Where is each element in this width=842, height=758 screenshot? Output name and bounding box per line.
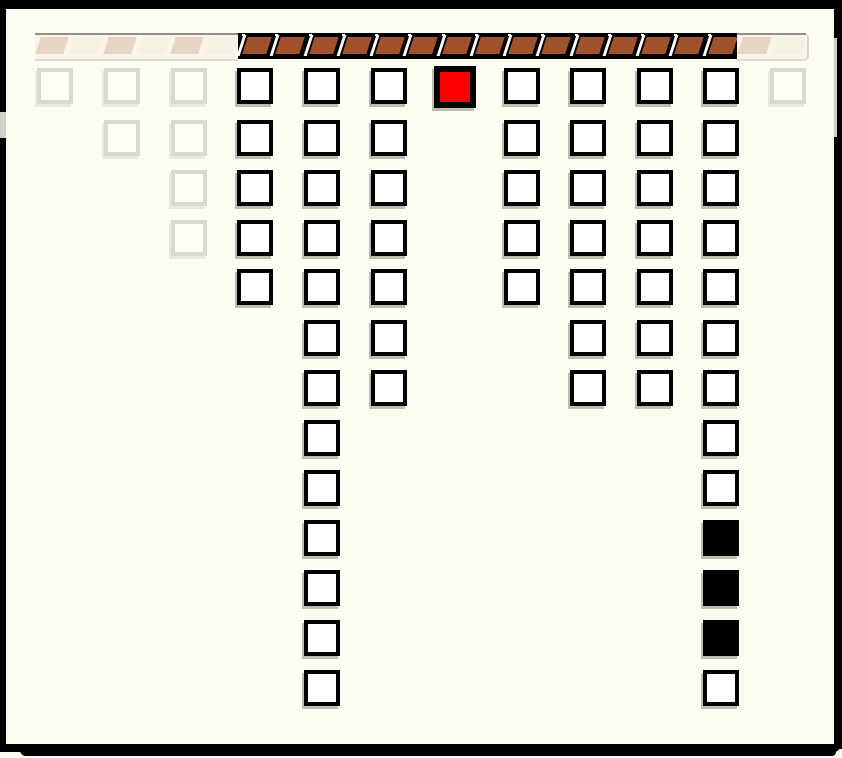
faded-brick bbox=[103, 37, 136, 54]
frame-notch-right bbox=[834, 38, 837, 137]
brick bbox=[708, 37, 738, 54]
grid-cell[interactable] bbox=[504, 120, 540, 156]
faded-brick bbox=[69, 37, 102, 54]
brick-highlight-dot bbox=[242, 34, 245, 36]
ghost-cell bbox=[104, 120, 140, 156]
filled-cell[interactable] bbox=[703, 570, 739, 606]
grid-cell[interactable] bbox=[570, 370, 606, 406]
grid-cell[interactable] bbox=[371, 370, 407, 406]
grid-cell[interactable] bbox=[570, 320, 606, 356]
grid-cell[interactable] bbox=[570, 120, 606, 156]
grid-cell[interactable] bbox=[304, 570, 340, 606]
grid-cell[interactable] bbox=[237, 220, 273, 256]
grid-cell[interactable] bbox=[304, 370, 340, 406]
grid-cell[interactable] bbox=[570, 269, 606, 305]
brick bbox=[309, 37, 339, 54]
filled-cell[interactable] bbox=[703, 620, 739, 656]
grid-cell[interactable] bbox=[637, 220, 673, 256]
brick-highlight-dot bbox=[575, 34, 578, 36]
grid-cell[interactable] bbox=[570, 220, 606, 256]
faded-brick bbox=[772, 37, 807, 54]
grid-cell[interactable] bbox=[703, 320, 739, 356]
ghost-cell bbox=[171, 68, 207, 104]
grid-cell[interactable] bbox=[504, 170, 540, 206]
brick-highlight-dot bbox=[674, 34, 677, 36]
grid-cell[interactable] bbox=[504, 220, 540, 256]
grid-cell[interactable] bbox=[637, 170, 673, 206]
brick bbox=[442, 37, 472, 54]
ghost-cell bbox=[104, 68, 140, 104]
grid-cell[interactable] bbox=[570, 68, 606, 104]
brick-highlight-dot bbox=[541, 34, 544, 36]
grid-cell[interactable] bbox=[304, 120, 340, 156]
ghost-cell bbox=[171, 120, 207, 156]
grid-cell[interactable] bbox=[703, 220, 739, 256]
grid-cell[interactable] bbox=[237, 120, 273, 156]
grid-cell[interactable] bbox=[237, 170, 273, 206]
brick-highlight-dot bbox=[342, 34, 345, 36]
ghost-cell bbox=[770, 68, 806, 104]
grid-cell[interactable] bbox=[637, 320, 673, 356]
grid-cell[interactable] bbox=[703, 420, 739, 456]
grid-cell[interactable] bbox=[304, 220, 340, 256]
faded-brick bbox=[737, 37, 772, 54]
grid-cell[interactable] bbox=[371, 170, 407, 206]
grid-cell[interactable] bbox=[304, 269, 340, 305]
brick bbox=[575, 37, 605, 54]
faded-brick bbox=[137, 37, 170, 54]
filled-cell[interactable] bbox=[703, 520, 739, 556]
brick-highlight-dot bbox=[708, 34, 711, 36]
grid-cell[interactable] bbox=[237, 269, 273, 305]
grid-cell[interactable] bbox=[637, 269, 673, 305]
faded-brick bbox=[35, 37, 68, 54]
grid-cell[interactable] bbox=[304, 470, 340, 506]
game-screen bbox=[0, 0, 842, 758]
brick-highlight-dot bbox=[375, 34, 378, 36]
brick-highlight-dot bbox=[475, 34, 478, 36]
grid-cell[interactable] bbox=[304, 520, 340, 556]
grid-cell[interactable] bbox=[637, 370, 673, 406]
frame-shadow bbox=[20, 750, 836, 756]
grid-cell[interactable] bbox=[304, 68, 340, 104]
brick-highlight-dot bbox=[608, 34, 611, 36]
brick-highlight-dot bbox=[508, 34, 511, 36]
ghost-cell bbox=[171, 220, 207, 256]
grid-cell[interactable] bbox=[371, 220, 407, 256]
grid-cell[interactable] bbox=[371, 120, 407, 156]
brick-highlight-dot bbox=[408, 34, 411, 36]
grid-cell[interactable] bbox=[371, 320, 407, 356]
grid-cell[interactable] bbox=[504, 269, 540, 305]
grid-cell[interactable] bbox=[637, 120, 673, 156]
brick-highlight-dot bbox=[442, 34, 445, 36]
frame-notch-left bbox=[0, 112, 6, 138]
grid-cell[interactable] bbox=[237, 68, 273, 104]
grid-cell[interactable] bbox=[504, 68, 540, 104]
brick-highlight-dot bbox=[275, 34, 278, 36]
grid-cell[interactable] bbox=[304, 670, 340, 706]
ghost-cell bbox=[37, 68, 73, 104]
grid-cell[interactable] bbox=[703, 470, 739, 506]
grid-cell[interactable] bbox=[703, 170, 739, 206]
grid-cell[interactable] bbox=[703, 670, 739, 706]
grid-cell[interactable] bbox=[570, 170, 606, 206]
grid-cell[interactable] bbox=[703, 68, 739, 104]
grid-cell[interactable] bbox=[637, 68, 673, 104]
brick-highlight-dot bbox=[641, 34, 644, 36]
selected-cell[interactable] bbox=[434, 66, 476, 108]
grid-cell[interactable] bbox=[371, 68, 407, 104]
grid-cell[interactable] bbox=[304, 170, 340, 206]
frame-border-top bbox=[0, 0, 842, 9]
grid-cell[interactable] bbox=[304, 620, 340, 656]
faded-brick bbox=[204, 37, 237, 54]
ghost-cell bbox=[171, 170, 207, 206]
grid-cell[interactable] bbox=[304, 320, 340, 356]
grid-cell[interactable] bbox=[304, 420, 340, 456]
grid-cell[interactable] bbox=[371, 269, 407, 305]
grid-cell[interactable] bbox=[703, 370, 739, 406]
grid-cell[interactable] bbox=[703, 269, 739, 305]
grid-cell[interactable] bbox=[703, 120, 739, 156]
brick-highlight-dot bbox=[309, 34, 312, 36]
